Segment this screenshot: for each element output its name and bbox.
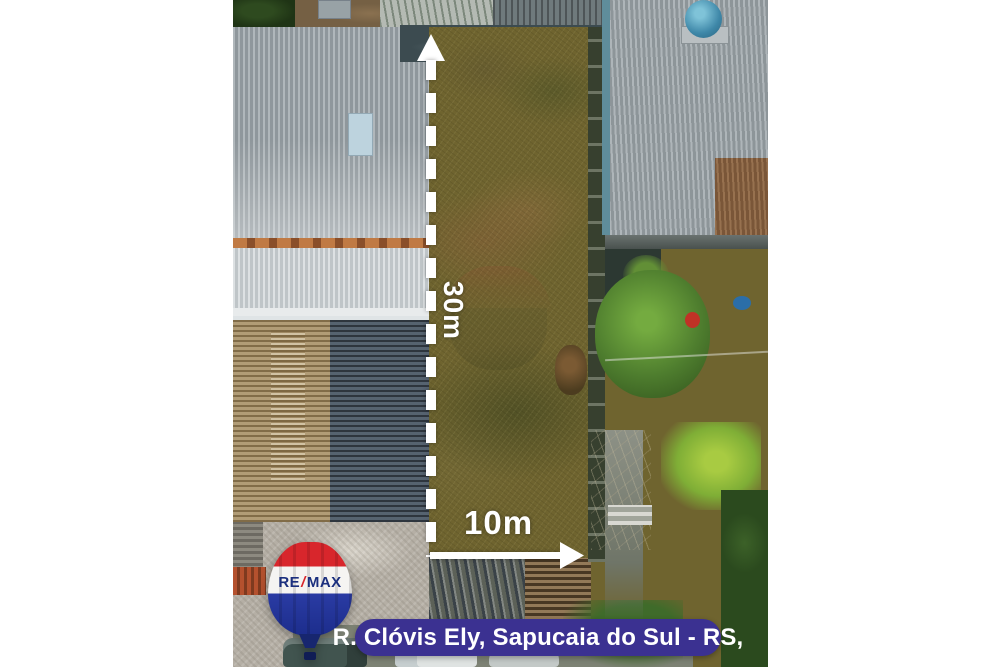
roof-skylight bbox=[348, 113, 373, 156]
bush bbox=[233, 0, 295, 27]
top-roof-strip bbox=[380, 0, 493, 27]
roof-eave bbox=[605, 235, 768, 249]
textured-wall bbox=[233, 522, 263, 572]
roof-edge bbox=[233, 316, 429, 320]
corrugated-roof-white bbox=[233, 248, 429, 308]
balloon-taper bbox=[299, 634, 321, 648]
concrete-steps bbox=[608, 505, 652, 525]
blue-water-tank bbox=[685, 0, 722, 38]
gravel-pile bbox=[429, 553, 525, 623]
roof-highlight bbox=[233, 140, 429, 238]
blue-bucket bbox=[733, 296, 751, 310]
rusty-roof-seam bbox=[233, 238, 429, 248]
width-dimension-label: 10m bbox=[464, 504, 533, 542]
listing-image: 30m 10m RE/MAX R. Clóvis Ely, Sapucaia d… bbox=[0, 0, 1000, 667]
backyard-tree bbox=[595, 270, 710, 398]
wordmark-max: MAX bbox=[307, 574, 342, 591]
red-bucket bbox=[685, 312, 700, 328]
wordmark-re: RE bbox=[278, 574, 300, 591]
dry-branches bbox=[591, 430, 651, 550]
aerial-photo: 30m 10m RE/MAX R. Clóvis Ely, Sapucaia d… bbox=[233, 0, 768, 667]
small-shrub bbox=[555, 345, 587, 395]
vertical-dashed-measure-line bbox=[426, 60, 436, 557]
roof-fascia bbox=[233, 308, 429, 316]
rusty-roof-patch bbox=[715, 158, 768, 235]
depth-dimension-label: 30m bbox=[437, 281, 469, 340]
wordmark-slash: / bbox=[300, 574, 307, 591]
address-caption-pill: R. Clóvis Ely, Sapucaia do Sul - RS, bbox=[355, 619, 721, 656]
tan-roof-patch bbox=[271, 330, 305, 480]
slate-roof bbox=[330, 316, 429, 522]
top-roof-strip-dark bbox=[493, 0, 611, 25]
horizontal-measure-line bbox=[430, 552, 562, 559]
address-text: R. Clóvis Ely, Sapucaia do Sul - RS, bbox=[333, 624, 744, 652]
balloon-basket bbox=[304, 652, 316, 660]
roof-right-edge bbox=[602, 0, 610, 235]
shed-roof bbox=[318, 0, 351, 19]
red-tile-roof bbox=[233, 567, 266, 595]
balloon-canopy: RE/MAX bbox=[268, 542, 352, 636]
remax-wordmark: RE/MAX bbox=[268, 575, 352, 590]
